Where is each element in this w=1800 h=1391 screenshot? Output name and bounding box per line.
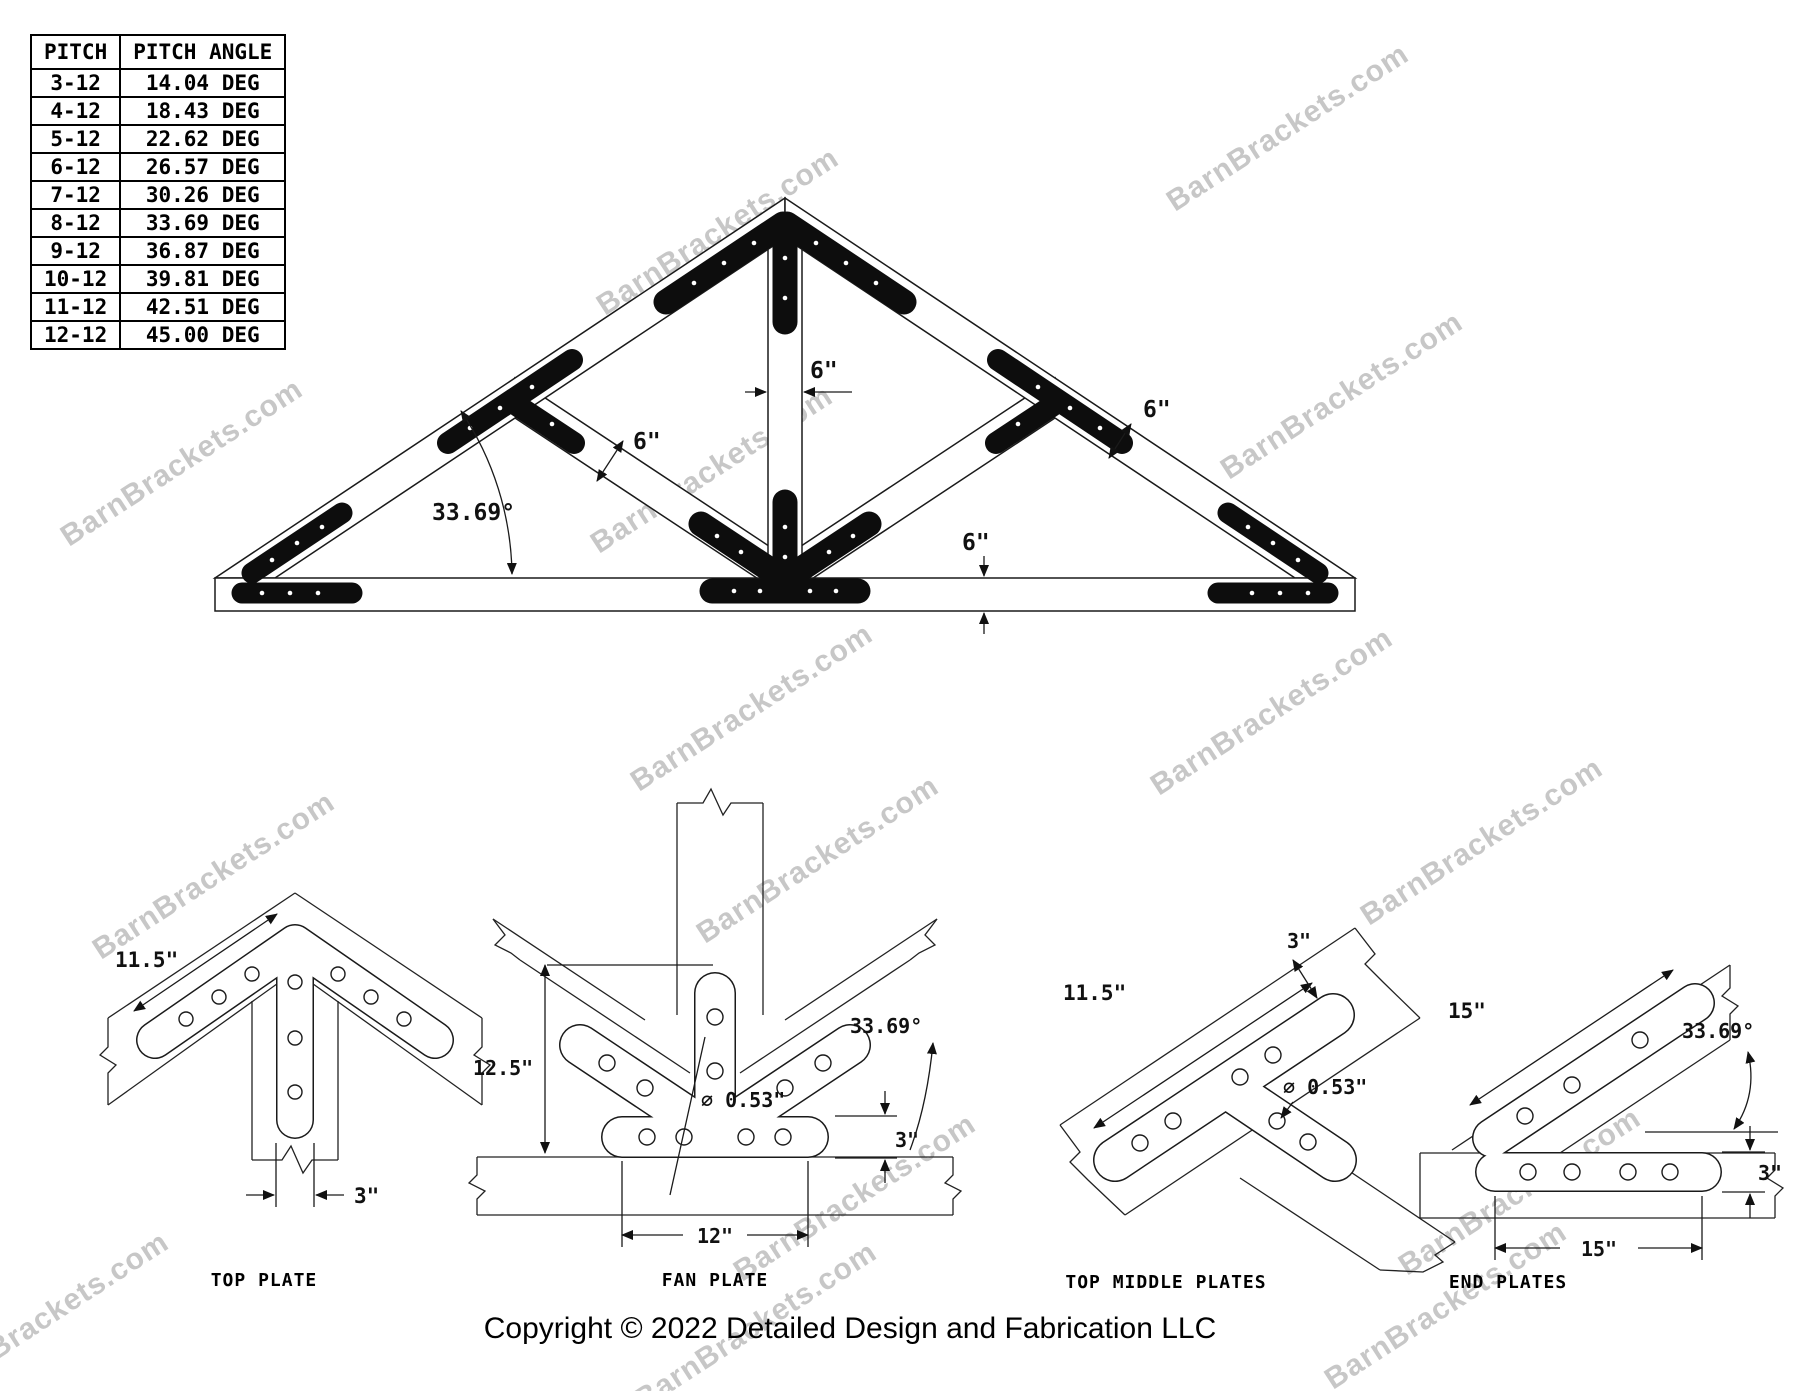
- right-top-middle-plate: [996, 360, 1122, 443]
- dim-king-post-width: 6": [810, 358, 838, 384]
- detail-top-plate: 11.5" 3": [100, 893, 490, 1208]
- dim-angle: 33.69°: [850, 1014, 922, 1038]
- plate-outline: [1492, 1003, 1702, 1180]
- dim-hole-diameter: ⌀ 0.53": [1283, 1075, 1367, 1099]
- dim-bar-height: 3": [895, 1128, 919, 1152]
- dim-arm-length: 11.5": [115, 948, 178, 972]
- dim-bar-length: 12": [697, 1224, 733, 1248]
- dim-hole-diameter: ⌀ 0.53": [701, 1088, 785, 1112]
- caption-fan-plate: FAN PLATE: [615, 1270, 815, 1291]
- detail-end-plates: 15" 33.69° 3" 15": [1420, 965, 1783, 1261]
- left-top-middle-plate: [448, 360, 574, 443]
- dim-bar-height: 3": [1758, 1161, 1782, 1185]
- dim-rafter-width: 6": [1143, 397, 1171, 423]
- dim-angle: 33.69°: [1682, 1019, 1754, 1043]
- dim-pitch-angle: 33.69°: [432, 500, 515, 526]
- caption-end-plates: END PLATES: [1408, 1272, 1608, 1293]
- plate-outline: [155, 943, 435, 1120]
- dim-plate-width: 3": [1287, 929, 1311, 953]
- drawing-canvas: BarnBrackets.com BarnBrackets.com BarnBr…: [0, 0, 1800, 1391]
- dim-arm-length: 15": [1448, 999, 1486, 1023]
- copyright-text: Copyright © 2022 Detailed Design and Fab…: [0, 1312, 1700, 1346]
- dim-web-width: 6": [633, 429, 661, 455]
- dim-arm-length: 11.5": [1063, 981, 1126, 1005]
- peak-plate: [666, 224, 904, 322]
- truss-diagram: 6" 6" 6" 6" 33.69°: [215, 198, 1355, 634]
- dim-bar-length: 15": [1581, 1237, 1617, 1261]
- detail-fan-plate: 12.5" ⌀ 0.53" 3" 12" 33.69°: [469, 789, 961, 1248]
- caption-top-middle-plates: TOP MIDDLE PLATES: [1041, 1272, 1291, 1293]
- fan-plate: [701, 502, 869, 593]
- dim-leg-width: 3": [354, 1184, 379, 1208]
- plate-outline: [580, 993, 850, 1145]
- detail-top-middle-plates: 11.5" 3" ⌀ 0.53": [1060, 928, 1455, 1272]
- caption-top-plate: TOP PLATE: [164, 1270, 364, 1291]
- dim-overall-height: 12.5": [473, 1056, 533, 1080]
- dim-bottom-chord-depth: 6": [962, 530, 990, 556]
- truss-drawing-svg: 6" 6" 6" 6" 33.69°: [0, 0, 1800, 1391]
